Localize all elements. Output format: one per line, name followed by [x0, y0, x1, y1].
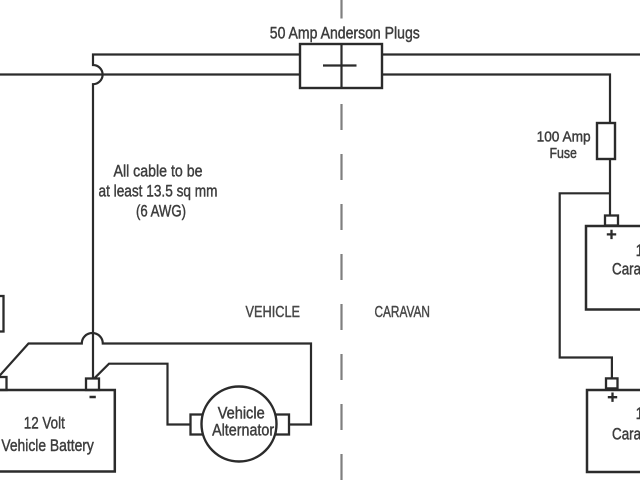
svg-text:50 Amp Anderson Plugs: 50 Amp Anderson Plugs: [270, 24, 420, 43]
svg-text:Alternator: Alternator: [212, 420, 274, 439]
svg-text:at least 13.5 sq mm: at least 13.5 sq mm: [99, 181, 218, 200]
svg-text:12 Volt: 12 Volt: [636, 404, 640, 423]
svg-text:Caravan Battery: Caravan Battery: [612, 259, 640, 278]
svg-text:12 Volt: 12 Volt: [24, 413, 65, 432]
svg-text:12 Volt: 12 Volt: [636, 241, 640, 260]
svg-text:All cable to be: All cable to be: [114, 161, 203, 180]
svg-text:Vehicle Battery: Vehicle Battery: [1, 436, 94, 455]
svg-text:100 Amp: 100 Amp: [537, 128, 591, 145]
svg-text:Fuse: Fuse: [549, 145, 577, 162]
svg-text:Caravan Battery: Caravan Battery: [612, 424, 640, 443]
svg-text:CARAVAN: CARAVAN: [374, 304, 430, 321]
svg-text:(6 AWG): (6 AWG): [136, 201, 186, 220]
svg-text:VEHICLE: VEHICLE: [246, 304, 301, 321]
